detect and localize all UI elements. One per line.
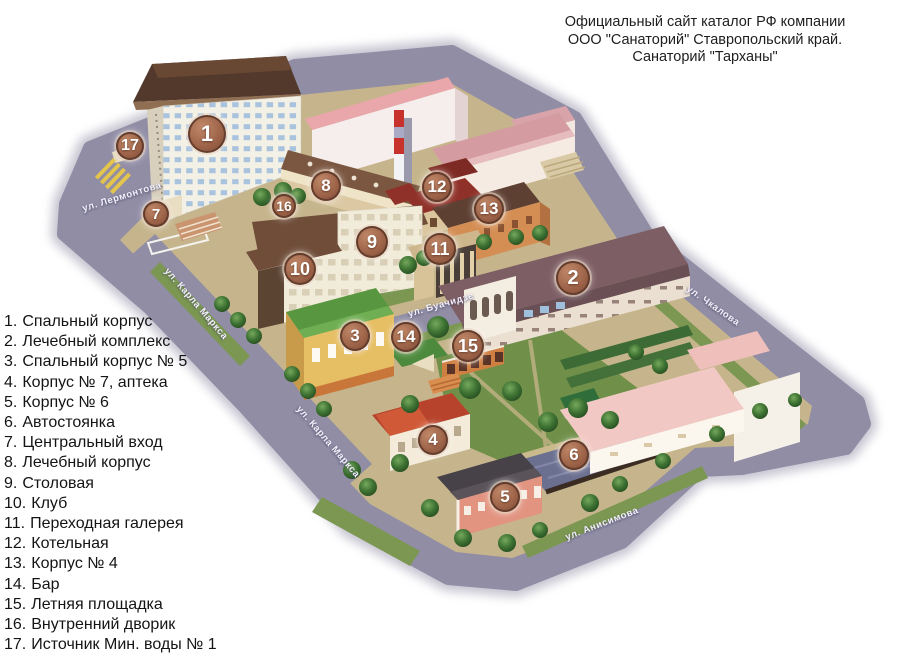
legend-item: 17.Источник Мин. воды № 1 [4,635,254,655]
map-marker-9[interactable]: 9 [356,226,388,258]
legend-item: 11.Переходная галерея [4,514,254,534]
map-legend: 1.Спальный корпус2.Лечебный комплекс3.Сп… [4,312,254,655]
legend-item-number: 8. [4,454,17,471]
legend-item-label: Корпус № 7, аптека [22,374,167,391]
legend-item-number: 15. [4,596,26,613]
legend-item-label: Корпус № 4 [31,555,118,572]
legend-list: 1.Спальный корпус2.Лечебный комплекс3.Сп… [4,312,254,655]
map-marker-6[interactable]: 6 [559,440,589,470]
legend-item-number: 14. [4,576,26,593]
legend-item-number: 2. [4,333,17,350]
legend-item-number: 3. [4,353,17,370]
legend-item: 12.Котельная [4,534,254,554]
legend-item-number: 1. [4,313,17,330]
legend-item: 6.Автостоянка [4,413,254,433]
map-marker-13[interactable]: 13 [474,194,504,224]
legend-item: 2.Лечебный комплекс [4,332,254,352]
legend-item-label: Спальный корпус № 5 [22,353,187,370]
legend-item-label: Котельная [31,535,108,552]
legend-item-label: Бар [31,576,59,593]
legend-item: 8.Лечебный корпус [4,453,254,473]
legend-item-number: 11. [4,515,25,532]
title-line-3: Санаторий "Тарханы" [520,49,890,67]
map-marker-1[interactable]: 1 [188,115,226,153]
map-marker-12[interactable]: 12 [422,172,452,202]
legend-item-label: Спальный корпус [22,313,152,330]
legend-item-label: Клуб [31,495,67,512]
map-marker-15[interactable]: 15 [452,330,484,362]
legend-item-number: 17. [4,636,26,653]
legend-item-label: Источник Мин. воды № 1 [31,636,216,653]
legend-item-number: 10. [4,495,26,512]
legend-item-label: Автостоянка [22,414,115,431]
title-line-1: Официальный сайт каталог РФ компании [520,14,890,32]
map-marker-7[interactable]: 7 [143,201,169,227]
map-marker-5[interactable]: 5 [490,482,520,512]
legend-item: 7.Центральный вход [4,433,254,453]
map-marker-16[interactable]: 16 [272,194,296,218]
map-marker-8[interactable]: 8 [311,171,341,201]
legend-item-number: 5. [4,394,17,411]
legend-item: 13.Корпус № 4 [4,554,254,574]
legend-item-label: Внутренний дворик [31,616,175,633]
map-marker-11[interactable]: 11 [424,233,456,265]
legend-item: 15.Летняя площадка [4,595,254,615]
legend-item-number: 16. [4,616,26,633]
page-title: Официальный сайт каталог РФ компании ООО… [520,14,890,67]
map-marker-17[interactable]: 17 [116,132,144,160]
map-marker-14[interactable]: 14 [391,322,421,352]
map-marker-3[interactable]: 3 [340,321,370,351]
legend-item-number: 12. [4,535,26,552]
legend-item: 1.Спальный корпус [4,312,254,332]
legend-item-number: 6. [4,414,17,431]
legend-item-number: 4. [4,374,17,391]
legend-item-label: Столовая [22,475,94,492]
legend-item-label: Лечебный комплекс [22,333,170,350]
legend-item: 5.Корпус № 6 [4,393,254,413]
legend-item-number: 9. [4,475,17,492]
legend-item-label: Переходная галерея [30,515,183,532]
map-marker-10[interactable]: 10 [284,253,316,285]
legend-item: 3.Спальный корпус № 5 [4,352,254,372]
map-marker-2[interactable]: 2 [556,261,590,295]
legend-item-label: Корпус № 6 [22,394,109,411]
legend-item-label: Центральный вход [22,434,162,451]
title-line-2: ООО "Санаторий" Ставропольский край. [520,32,890,50]
legend-item: 4.Корпус № 7, аптека [4,373,254,393]
map-marker-4[interactable]: 4 [418,425,448,455]
legend-item: 14.Бар [4,575,254,595]
legend-item-label: Лечебный корпус [22,454,150,471]
legend-item-label: Летняя площадка [31,596,163,613]
legend-item: 9.Столовая [4,474,254,494]
legend-item: 10.Клуб [4,494,254,514]
legend-item: 16.Внутренний дворик [4,615,254,635]
page: 1234567891011121314151617ул. Лермонтовау… [0,0,900,666]
legend-item-number: 7. [4,434,17,451]
legend-item-number: 13. [4,555,26,572]
